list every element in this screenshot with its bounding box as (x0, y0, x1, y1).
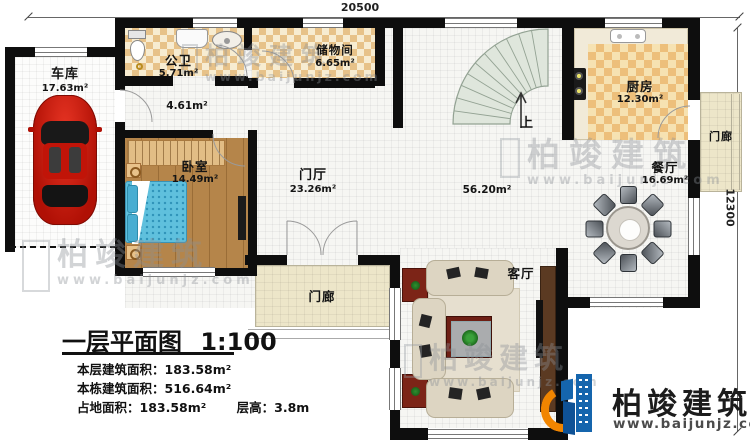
sink-icon (212, 31, 242, 49)
cushion (446, 267, 461, 279)
car-mirror (28, 127, 35, 132)
logo-website: www.baijunjz.com (613, 416, 750, 432)
living-name: 客厅 (495, 266, 547, 281)
dining-area: 16.69m² (630, 175, 700, 187)
foyer-name: 门厅 (278, 168, 348, 184)
wall (215, 268, 257, 276)
logo-windows (585, 379, 588, 425)
dimension-line-right (737, 28, 738, 432)
window (389, 288, 401, 340)
kitchen-label: 厨房 12.30m² (605, 79, 675, 106)
wall (115, 122, 125, 276)
foyer-area: 23.26m² (278, 184, 348, 196)
wall (517, 18, 605, 28)
window (143, 267, 215, 277)
lamp-icon (130, 167, 141, 178)
porch-right-name: 门廊 (697, 130, 745, 143)
storage-area: 6.65m² (297, 58, 373, 70)
toilet-icon (128, 30, 146, 39)
car-icon (33, 95, 97, 225)
plant-icon (411, 387, 420, 396)
logo-building-block (576, 374, 592, 432)
wall (115, 268, 143, 276)
wall (5, 47, 15, 252)
stove-icon (572, 68, 586, 100)
dining-chair-icon (586, 221, 604, 238)
logo-windows (579, 379, 582, 425)
wall (390, 428, 428, 440)
plant-icon (411, 281, 420, 290)
wall (562, 28, 574, 140)
wall (688, 18, 700, 100)
car-seat (49, 147, 61, 173)
dining-table-icon (606, 206, 650, 250)
cushion (419, 314, 433, 328)
corner-cabinet-icon (402, 268, 428, 302)
cushion (419, 344, 432, 358)
window (605, 18, 662, 28)
garage-name: 车库 (30, 67, 100, 83)
stairs-up-label: 上 (514, 116, 540, 132)
burner (575, 87, 583, 95)
bedroom-area: 14.49m² (160, 174, 230, 186)
faucet-dot (617, 34, 622, 39)
window (445, 18, 517, 28)
porch-bottom-name: 门廊 (292, 289, 352, 304)
cushion (448, 387, 462, 400)
floor-plan-canvas: 20500 12300 (0, 0, 750, 442)
bedroom-label: 卧室 14.49m² (160, 159, 230, 186)
wall (358, 255, 400, 265)
wall (663, 297, 700, 308)
hallway-area-label: 4.61m² (157, 100, 217, 113)
bathroom-name: 公卫 (146, 53, 211, 68)
tv-icon (536, 300, 543, 358)
stat-value: 183.58m² (165, 362, 232, 377)
wall (115, 18, 125, 90)
dimension-top-label: 20500 (325, 1, 395, 14)
dining-chair-icon (620, 254, 637, 272)
wall (245, 255, 287, 265)
stat-value: 3.8m (274, 400, 309, 415)
cushion (476, 387, 491, 400)
stat-label: 本栋建筑面积： (77, 381, 165, 396)
wall (244, 28, 252, 50)
stat-value: 516.64m² (165, 381, 232, 396)
car-rear-window (42, 185, 88, 207)
cushion (474, 267, 489, 279)
dining-name: 餐厅 (630, 160, 700, 175)
title-underline (62, 352, 234, 355)
shower-tray-icon (176, 29, 208, 48)
pillow (127, 185, 138, 213)
floor-drain-icon (136, 63, 143, 70)
window (688, 198, 700, 255)
storage-name: 储物间 (297, 44, 373, 58)
window (389, 368, 401, 410)
plant-icon (462, 330, 478, 346)
stat-row: 本栋建筑面积：516.64m² (77, 378, 231, 397)
bed-icon (125, 181, 187, 243)
window (590, 297, 663, 307)
garage-door (35, 47, 87, 57)
kitchen-name: 厨房 (605, 79, 675, 94)
bedroom-tv-icon (238, 196, 246, 240)
hall-open-area: 56.20m² (455, 184, 519, 197)
pillow (127, 214, 138, 242)
wall (125, 130, 213, 138)
car-seat (69, 147, 81, 173)
wall (390, 340, 400, 368)
porch-right-label: 门廊 (697, 130, 745, 143)
foyer-label: 门厅 23.26m² (278, 168, 348, 196)
hall-open-area-label: 56.20m² (455, 184, 519, 197)
window (193, 18, 237, 28)
hallway-area: 4.61m² (157, 100, 217, 113)
nightstand-icon (126, 163, 141, 178)
logo-icon (541, 372, 607, 438)
dining-label: 餐厅 16.69m² (630, 160, 700, 187)
storage-label: 储物间 6.65m² (297, 44, 373, 70)
dining-table-center (619, 219, 641, 241)
lamp-icon (130, 249, 141, 260)
wall (294, 78, 375, 88)
wall (248, 78, 258, 88)
bathroom-label: 公卫 5.71m² (146, 53, 211, 80)
wall (87, 47, 115, 57)
window (303, 18, 343, 28)
sofa-icon (426, 378, 514, 418)
porch-bottom-label: 门廊 (292, 289, 352, 304)
stairs-up-text: 上 (514, 116, 540, 132)
stat-value: 183.58m² (140, 400, 207, 415)
logo-building-block (561, 379, 573, 402)
sofa-icon (412, 298, 446, 380)
dining-chair-icon (620, 186, 637, 204)
car-windshield (41, 121, 89, 145)
garage-label: 车库 17.63m² (30, 67, 100, 95)
wall (375, 28, 385, 86)
kitchen-sink-icon (610, 29, 646, 43)
burner (575, 72, 583, 80)
car-mirror (95, 127, 102, 132)
wall (237, 18, 303, 28)
bathroom-area: 5.71m² (146, 68, 211, 80)
bedroom-name: 卧室 (160, 159, 230, 174)
faucet-dot (635, 34, 640, 39)
living-label: 客厅 (495, 266, 547, 281)
stat-label: 占地面积： (77, 400, 140, 415)
garage-opening-dashed (10, 246, 116, 248)
stat-label: 层高： (237, 400, 275, 415)
garage-area: 17.63m² (30, 83, 100, 95)
stat-label: 本层建筑面积： (77, 362, 165, 377)
sink-drain (224, 38, 230, 44)
coffee-table-icon (446, 316, 492, 358)
kitchen-area: 12.30m² (605, 94, 675, 106)
stat-row: 本层建筑面积：183.58m² (77, 359, 231, 378)
wall (115, 18, 193, 28)
nightstand-icon (126, 245, 141, 260)
wall (393, 18, 403, 128)
dimension-right-label: 12300 (724, 188, 737, 228)
wall (390, 410, 400, 428)
wall (215, 76, 248, 86)
window (428, 429, 528, 439)
stat-row: 占地面积：183.58m² 层高：3.8m (77, 397, 309, 416)
dining-chair-icon (654, 221, 672, 238)
logo-building-block (563, 401, 575, 435)
